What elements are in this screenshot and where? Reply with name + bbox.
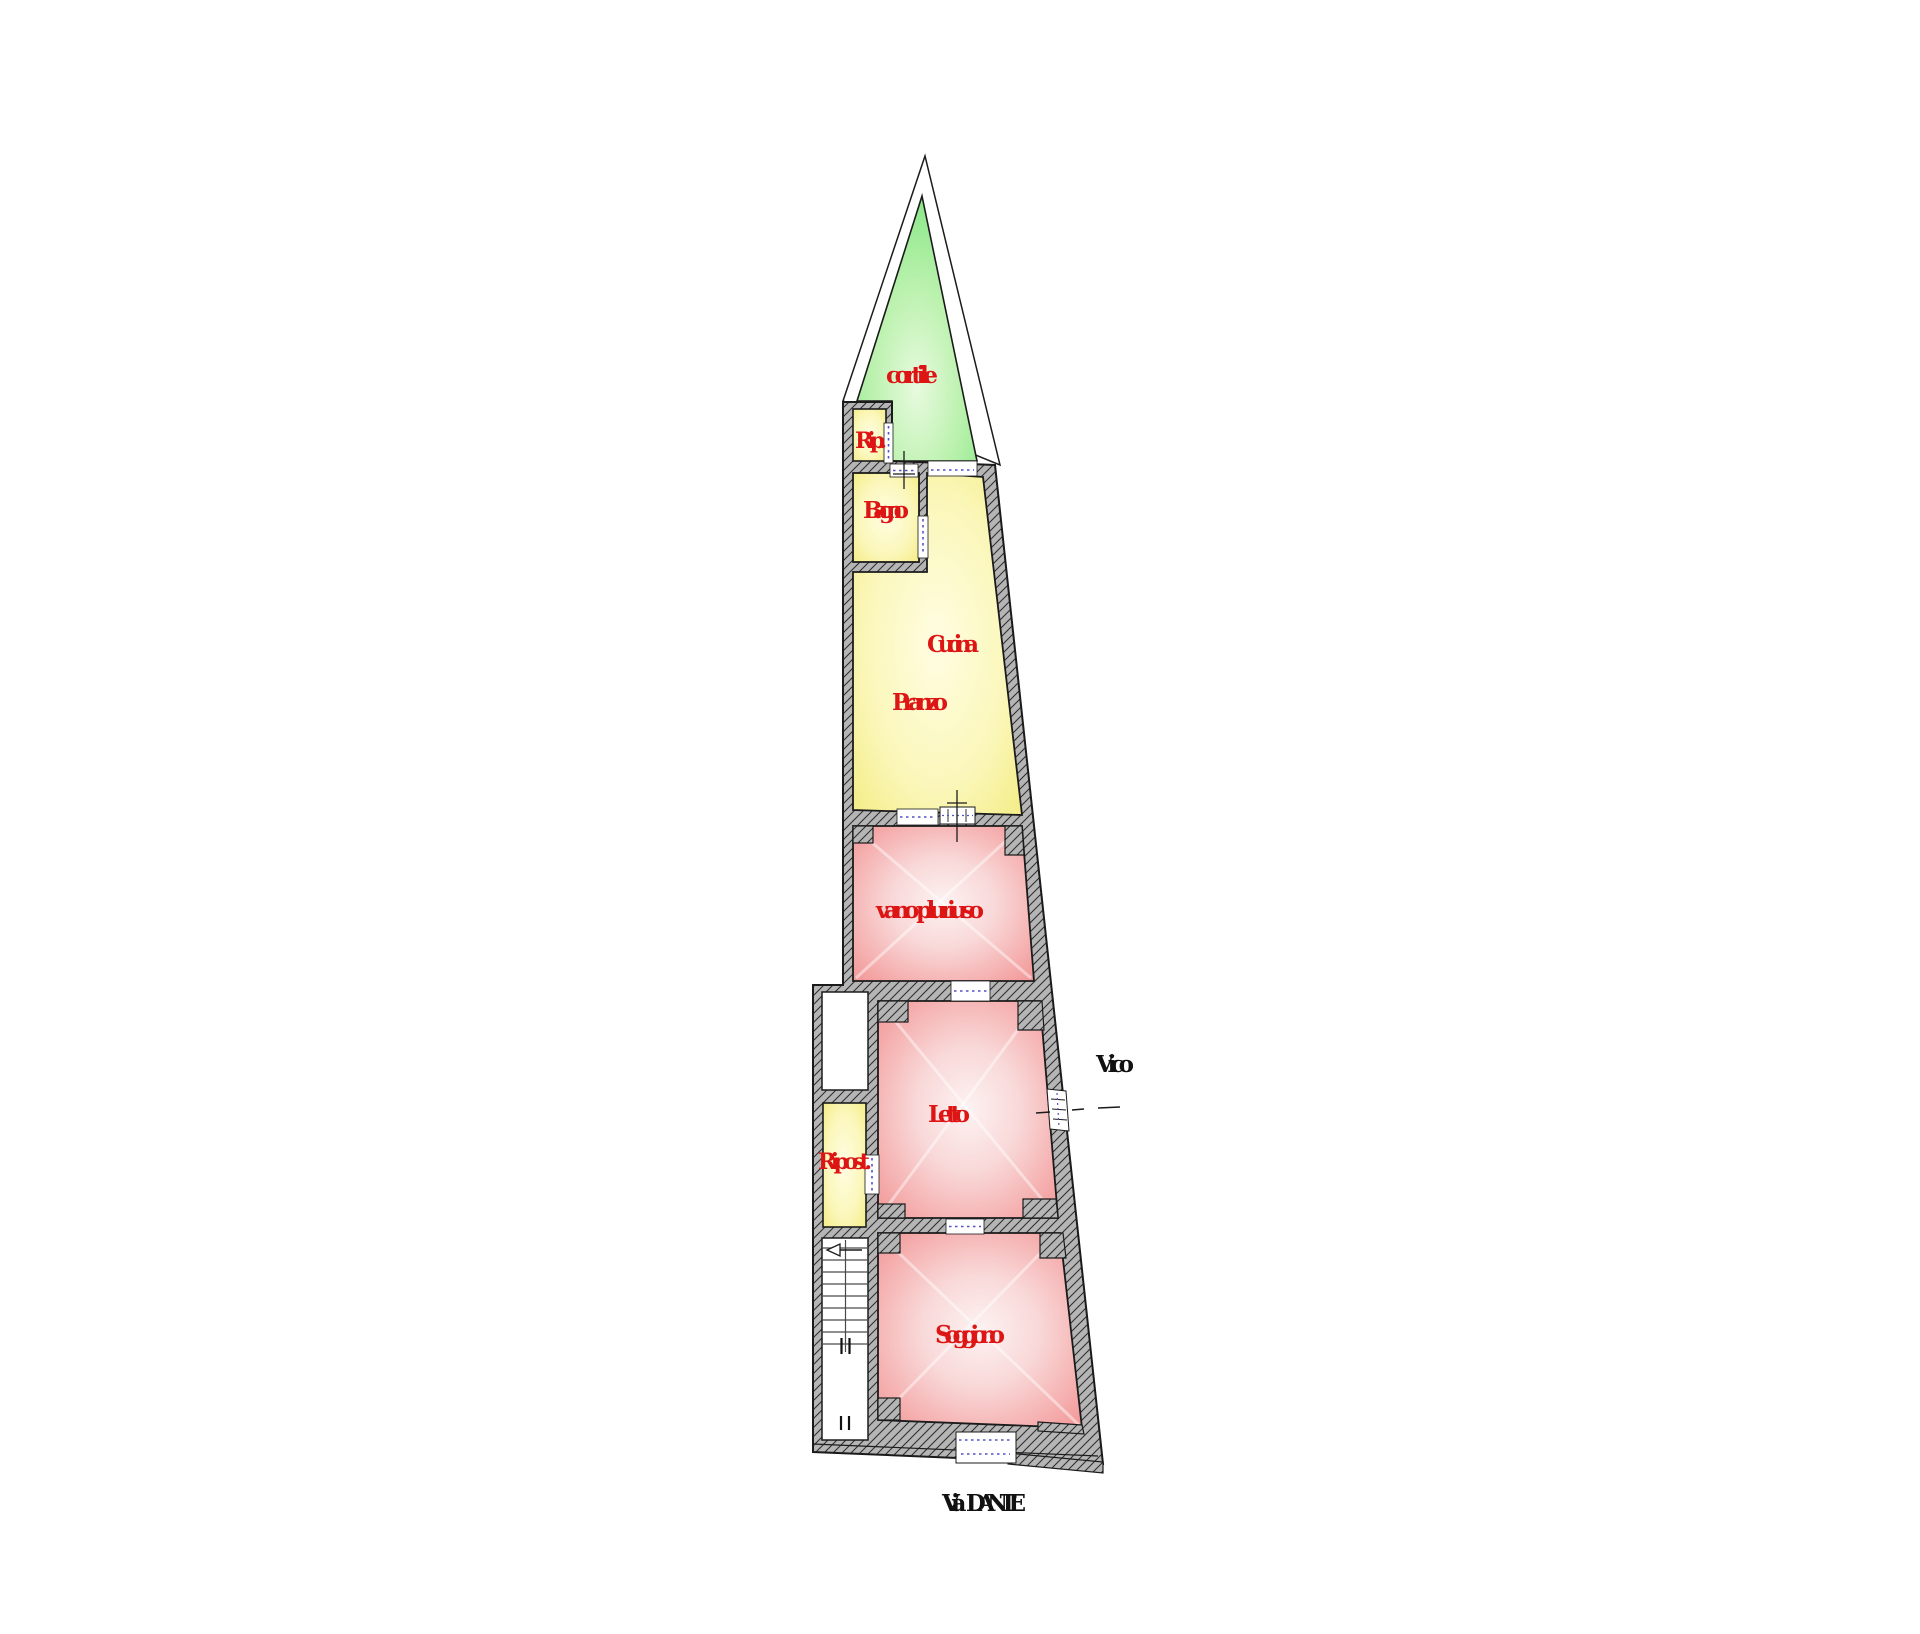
- door-letto-soggiono: [946, 1219, 984, 1234]
- door-facade-via-dante: [956, 1432, 1016, 1463]
- street-label-vico: Vico: [1095, 1051, 1134, 1078]
- room-label-vano-pluriuso: vano pluriuso: [875, 897, 984, 924]
- floor-plan-page: cortile Rip. Bagno Cucina Pranzo vano pl…: [0, 0, 1920, 1634]
- room-label-soggiono: Soggiono: [935, 1320, 1005, 1349]
- room-label-cortile: cortile: [886, 362, 938, 389]
- street-label-via-dante: Via DANTE: [941, 1490, 1026, 1517]
- room-label-cucina: Cucina: [927, 631, 979, 658]
- room-label-rip: Rip.: [855, 428, 887, 454]
- room-label-letto: Letto: [928, 1101, 970, 1128]
- room-label-pranzo: Pranzo: [892, 689, 948, 716]
- room-label-bagno: Bagno: [863, 497, 909, 524]
- floor-plan-svg: cortile Rip. Bagno Cucina Pranzo vano pl…: [0, 0, 1920, 1634]
- door-cortile-cucina: [928, 461, 977, 476]
- room-label-ripost: Ripost.: [818, 1149, 872, 1175]
- light-shaft: [822, 992, 868, 1090]
